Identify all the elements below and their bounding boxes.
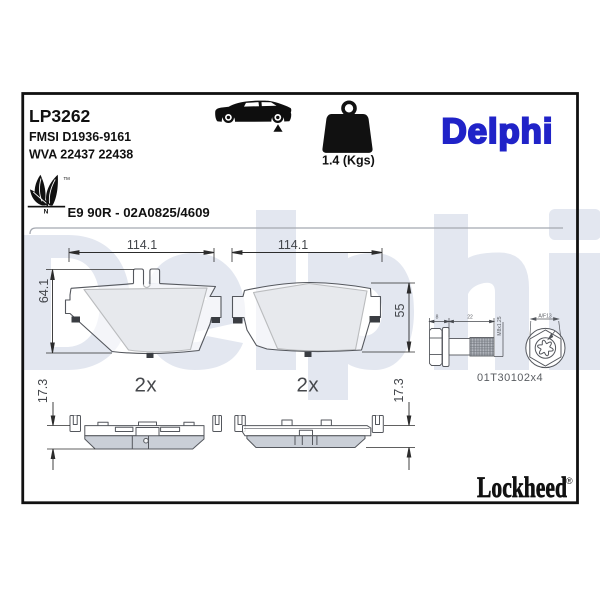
svg-text:N: N bbox=[44, 208, 49, 215]
svg-text:64.1: 64.1 bbox=[37, 279, 51, 303]
svg-text:55: 55 bbox=[393, 304, 407, 318]
svg-text:2x: 2x bbox=[135, 374, 158, 397]
svg-text:TM: TM bbox=[64, 176, 71, 181]
svg-text:®: ® bbox=[566, 476, 573, 486]
svg-text:8: 8 bbox=[436, 315, 439, 321]
svg-text:22: 22 bbox=[467, 315, 473, 321]
svg-text:E9 90R - 02A0825/4609: E9 90R - 02A0825/4609 bbox=[68, 205, 210, 220]
svg-text:01T30102x4: 01T30102x4 bbox=[477, 372, 543, 384]
svg-text:1.4 (Kgs): 1.4 (Kgs) bbox=[322, 154, 375, 168]
svg-text:A/F13: A/F13 bbox=[538, 314, 552, 320]
svg-text:17.3: 17.3 bbox=[36, 379, 50, 403]
svg-text:FMSI D1936-9161: FMSI D1936-9161 bbox=[29, 130, 131, 144]
svg-text:17.3: 17.3 bbox=[392, 378, 406, 402]
svg-text:LP3262: LP3262 bbox=[29, 106, 91, 126]
svg-text:WVA 22437 22438: WVA 22437 22438 bbox=[29, 148, 133, 162]
svg-text:Lockheed: Lockheed bbox=[477, 471, 567, 504]
svg-text:114.1: 114.1 bbox=[127, 238, 157, 252]
svg-text:2x: 2x bbox=[297, 374, 320, 397]
svg-text:Delphi: Delphi bbox=[442, 112, 554, 151]
svg-text:M8x1.25: M8x1.25 bbox=[497, 316, 503, 335]
svg-text:114.1: 114.1 bbox=[278, 238, 308, 252]
